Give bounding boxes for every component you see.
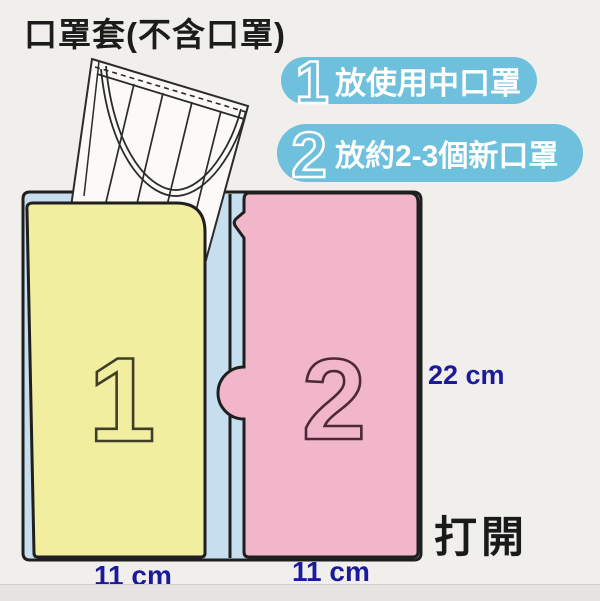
pocket-2-number: 2	[302, 336, 366, 464]
pocket-1-number: 1	[89, 333, 156, 467]
height-dimension-label: 22 cm	[428, 360, 505, 391]
card-edge-shadow	[0, 584, 600, 601]
callout-2-number: 2	[291, 119, 327, 191]
callout-1-number-badge: 1	[285, 50, 337, 114]
callout-1: 1 放使用中口罩	[281, 57, 537, 104]
product-title: 口罩套(不含口罩)	[24, 8, 286, 56]
product-diagram: 1 2 口罩套(不含口罩) 1 放使用中口罩 2 放約2-3個新口罩 22 cm…	[0, 0, 600, 600]
open-label: 打開	[434, 503, 528, 565]
callout-2: 2 放約2-3個新口罩	[277, 124, 583, 182]
callout-1-number: 1	[295, 49, 328, 116]
callout-2-number-badge: 2	[281, 117, 337, 189]
